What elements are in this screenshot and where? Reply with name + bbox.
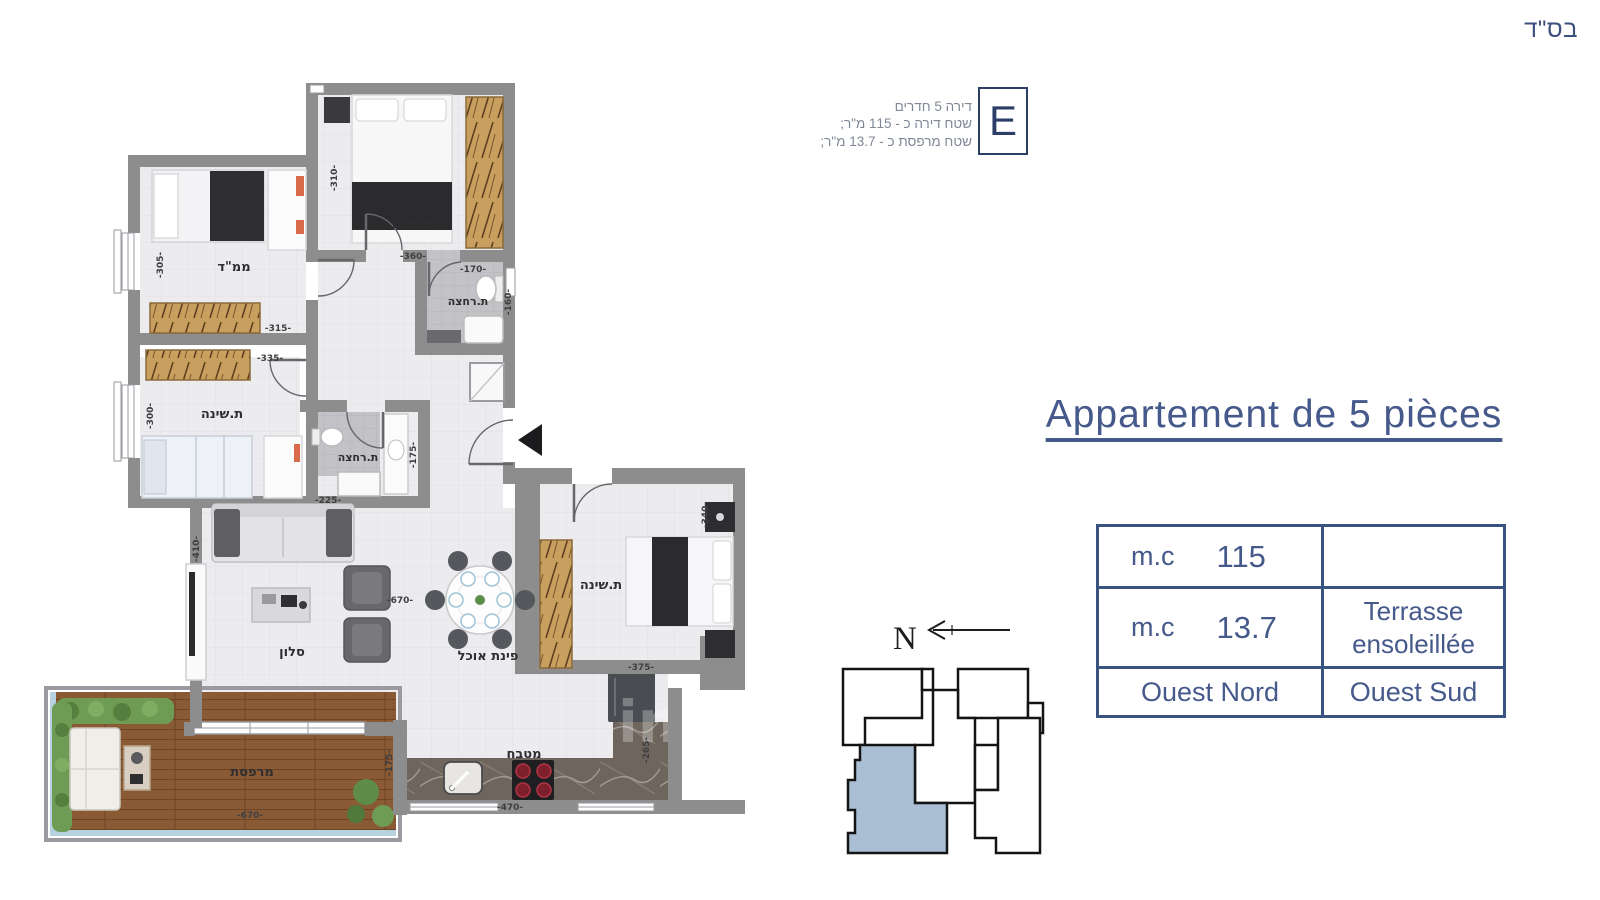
label-bedroom-top: ת.שינה <box>392 217 434 232</box>
spec-area-unit: m.c <box>1131 541 1175 572</box>
dim-mamad-h: -305- <box>156 252 166 279</box>
north-compass: N <box>893 621 1010 657</box>
dim-bath-mid-w: -225- <box>315 496 342 506</box>
watermark: im <box>618 688 698 756</box>
unit-letter-box: E <box>978 87 1028 155</box>
dim-top-bedroom-w: -360- <box>400 252 427 262</box>
dim-kitchen-w: -470- <box>497 803 524 813</box>
dim-living-w: -670- <box>387 596 414 606</box>
bed-left-bedroom <box>142 436 302 498</box>
entrance-arrow-icon <box>518 424 542 456</box>
bsd-text: בס"ד <box>1488 16 1578 44</box>
dim-bath-top-h: -160- <box>504 289 514 316</box>
outdoor-table <box>124 746 150 790</box>
dim-bedroom-right-w: -375- <box>628 663 655 673</box>
label-bedroom-left: ת.שינה <box>201 407 243 422</box>
unit-info-line3: שטח מרפסת כ - 13.7 מ"ר; <box>700 133 972 150</box>
label-bathroom-mid: ת.רחצה <box>338 451 379 464</box>
sofa <box>212 504 354 562</box>
label-kitchen: מטבח <box>506 747 541 762</box>
dim-mamad-w: -315- <box>265 324 292 334</box>
terrace <box>46 688 400 840</box>
spec-cell-orientation-2: Ouest Sud <box>1323 668 1505 717</box>
label-dining: פינת אוכל <box>458 649 519 664</box>
dim-kitchen-h: -265- <box>642 737 652 764</box>
cooktop <box>512 760 554 800</box>
label-terrace: מרפסת <box>230 765 274 780</box>
dim-bath-top-w: -170- <box>460 265 487 275</box>
unit-info-line2: שטח דירה כ - 115 מ"ר; <box>700 115 972 132</box>
unit-info-block: דירה 5 חדרים שטח דירה כ - 115 מ"ר; שטח מ… <box>700 98 972 150</box>
spec-terrace-value: 13.7 <box>1217 610 1277 646</box>
hall-shelf <box>470 363 504 401</box>
site-map: N <box>810 590 1060 870</box>
floorplan-page: { "header": { "bsd": "בס\"ד" }, "unit_in… <box>0 0 1600 900</box>
spec-area-value: 115 <box>1217 539 1266 575</box>
north-letter: N <box>893 621 917 657</box>
outdoor-sofa <box>70 728 120 810</box>
sink <box>444 762 482 794</box>
spec-cell-terrace-label: Terrasse ensoleillée <box>1323 588 1505 668</box>
spec-cell-empty <box>1323 526 1505 588</box>
label-bedroom-right: ת.שינה <box>580 578 622 593</box>
bed-mamad <box>152 170 306 250</box>
label-mamad: ממ"ד <box>217 260 250 275</box>
coffee-table <box>252 588 310 622</box>
spec-cell-orientation-1: Ouest Nord <box>1098 668 1323 717</box>
dim-top-bedroom-h: -310- <box>330 165 340 192</box>
dim-terrace-h: -175- <box>385 750 395 777</box>
dim-terrace-w: -670- <box>237 811 264 821</box>
spec-cell-terrace-area: m.c 13.7 <box>1098 588 1323 668</box>
dim-bath-mid-h: -175- <box>409 442 419 469</box>
dim-bedroom-left-w: -335- <box>257 354 284 364</box>
terrace-slider-window <box>194 722 365 734</box>
spec-terrace-line1: Terrasse <box>1324 595 1503 628</box>
tv-console <box>186 564 206 680</box>
page-title: Appartement de 5 pièces <box>1018 393 1530 437</box>
dim-bedroom-right-h: -340- <box>701 502 711 529</box>
spec-terrace-unit: m.c <box>1131 612 1175 643</box>
dim-bedroom-left-h: -300- <box>146 403 156 430</box>
spec-terrace-line2: ensoleillée <box>1324 628 1503 661</box>
label-bathroom-top: ת.רחצה <box>448 295 489 308</box>
spec-cell-area: m.c 115 <box>1098 526 1323 588</box>
spec-table: m.c 115 m.c 13.7 Terrasse ensoleillée <box>1096 524 1506 718</box>
unit-info-line1: דירה 5 חדרים <box>700 98 972 115</box>
label-living: סלון <box>279 645 305 660</box>
unit-letter: E <box>989 97 1017 145</box>
building-footprint <box>843 669 1043 853</box>
dim-living-h: -410- <box>192 536 202 563</box>
